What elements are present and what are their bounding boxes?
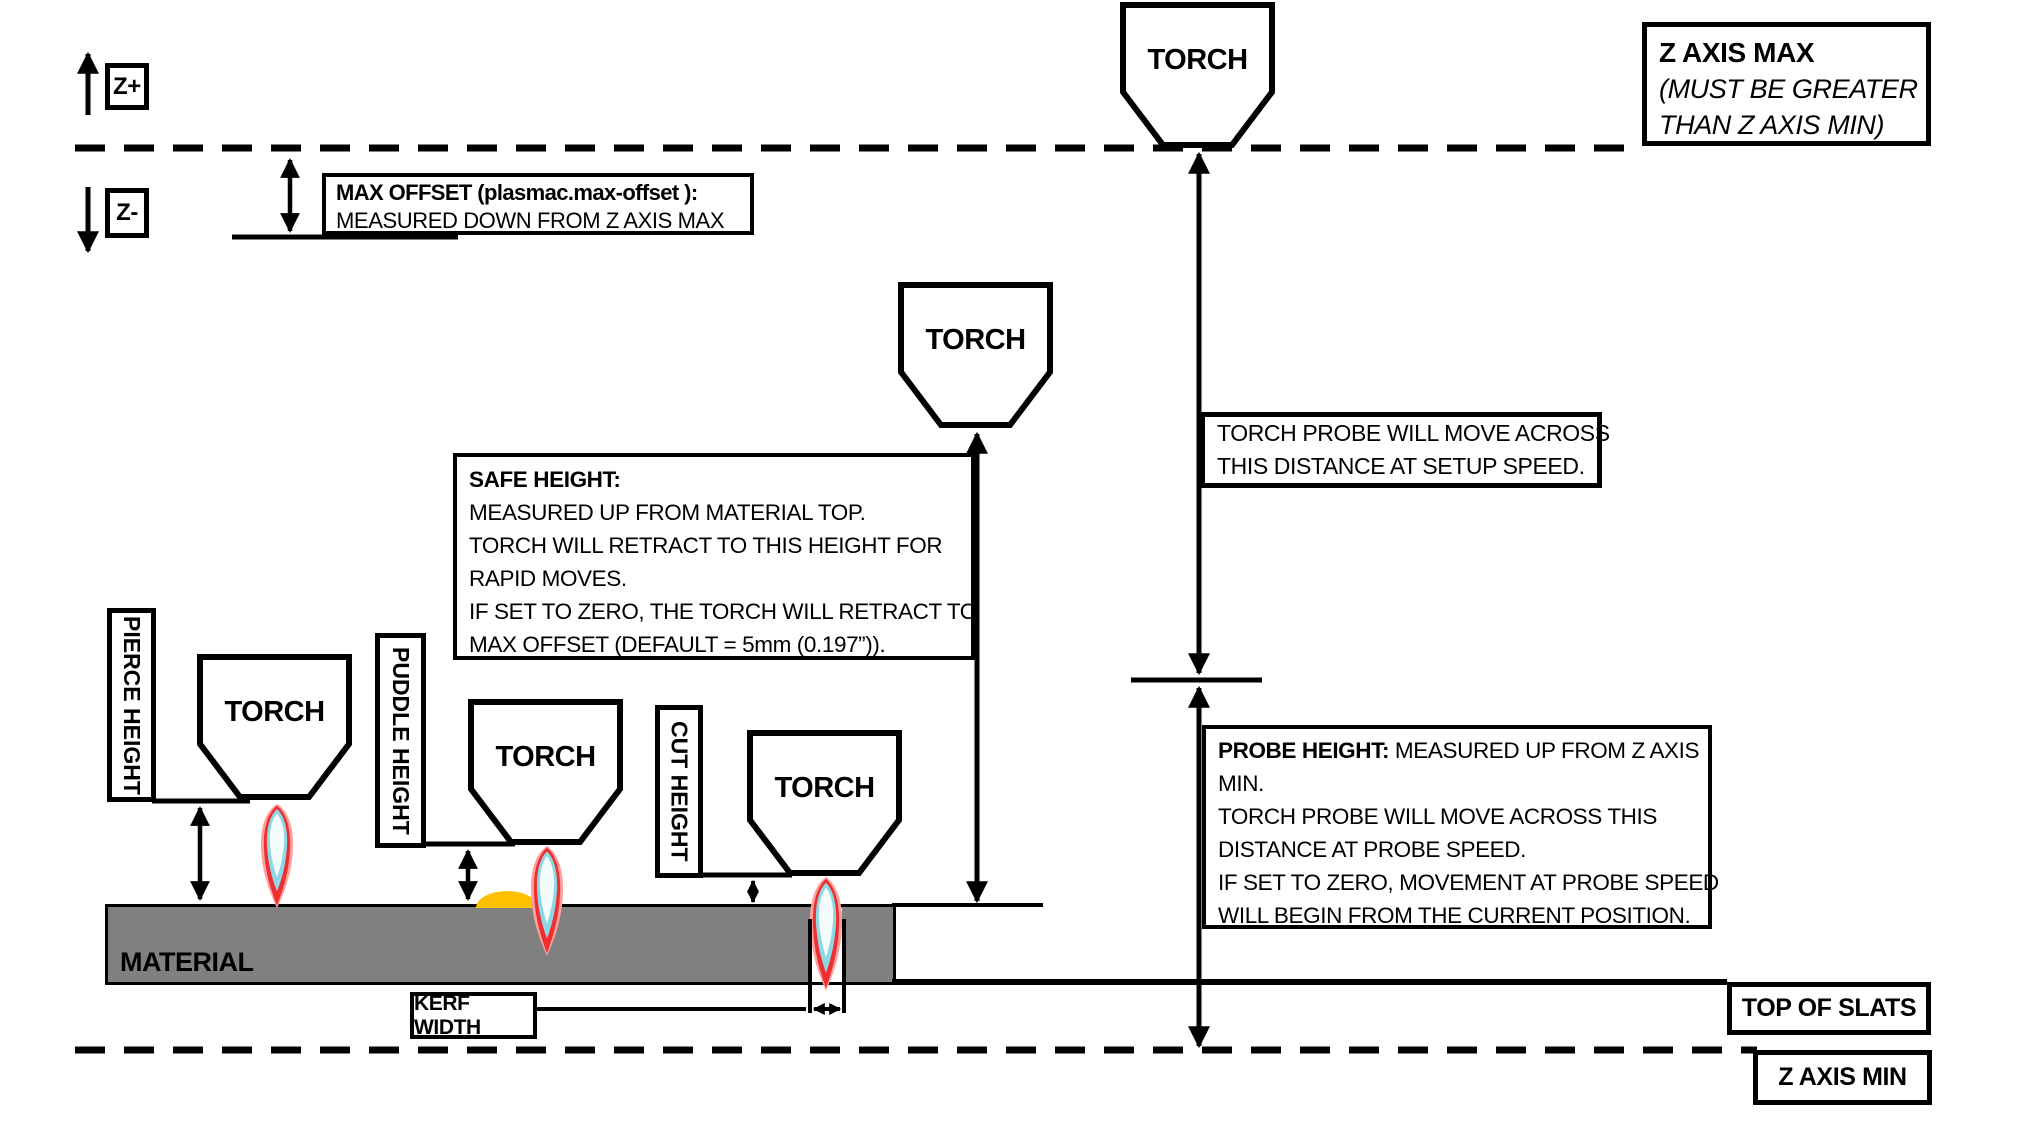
kerf-width-label-box: KERF WIDTH [410, 992, 537, 1039]
safe-height-title: SAFE HEIGHT: [469, 463, 959, 496]
pierce-height-label: PIERCE HEIGHT [107, 608, 156, 802]
safe-height-callout: SAFE HEIGHT: MEASURED UP FROM MATERIAL T… [453, 453, 975, 660]
diagram-line-art [0, 0, 2038, 1145]
z-axis-min-label-box: Z AXIS MIN [1753, 1050, 1932, 1105]
top-of-slats-label-box: TOP OF SLATS [1727, 982, 1931, 1035]
max-offset-callout: MAX OFFSET (plasmac.max-offset ): MEASUR… [322, 173, 754, 235]
plasma-torch-height-diagram: MATERIAL TORCH TORCH [0, 0, 2038, 1145]
z-minus-axis-box: Z- [105, 188, 149, 238]
torch-at-z-max: TORCH [1120, 2, 1275, 148]
torch-label: TORCH [898, 324, 1053, 357]
probe-height-callout: PROBE HEIGHT: MEASURED UP FROM Z AXIS MI… [1202, 725, 1712, 929]
max-offset-title: MAX OFFSET (plasmac.max-offset ): [336, 179, 740, 207]
torch-label: TORCH [468, 741, 623, 774]
torch-label: TORCH [1120, 44, 1275, 77]
puddle-height-label: PUDDLE HEIGHT [375, 633, 426, 848]
z-axis-max-callout: Z AXIS MAX (MUST BE GREATER THAN Z AXIS … [1642, 22, 1931, 146]
torch-probe-callout: TORCH PROBE WILL MOVE ACROSS THIS DISTAN… [1200, 412, 1602, 488]
z-axis-max-title: Z AXIS MAX [1659, 35, 1914, 71]
probe-height-title: PROBE HEIGHT: [1218, 738, 1389, 763]
torch-at-pierce-height: TORCH [197, 654, 352, 800]
cut-height-label: CUT HEIGHT [655, 705, 703, 878]
torch-at-safe-height: TORCH [898, 282, 1053, 428]
torch-at-cut-height: TORCH [747, 730, 902, 876]
torch-label: TORCH [747, 772, 902, 805]
torch-label: TORCH [197, 696, 352, 729]
z-plus-axis-box: Z+ [105, 63, 149, 110]
torch-at-puddle-height: TORCH [468, 699, 623, 845]
